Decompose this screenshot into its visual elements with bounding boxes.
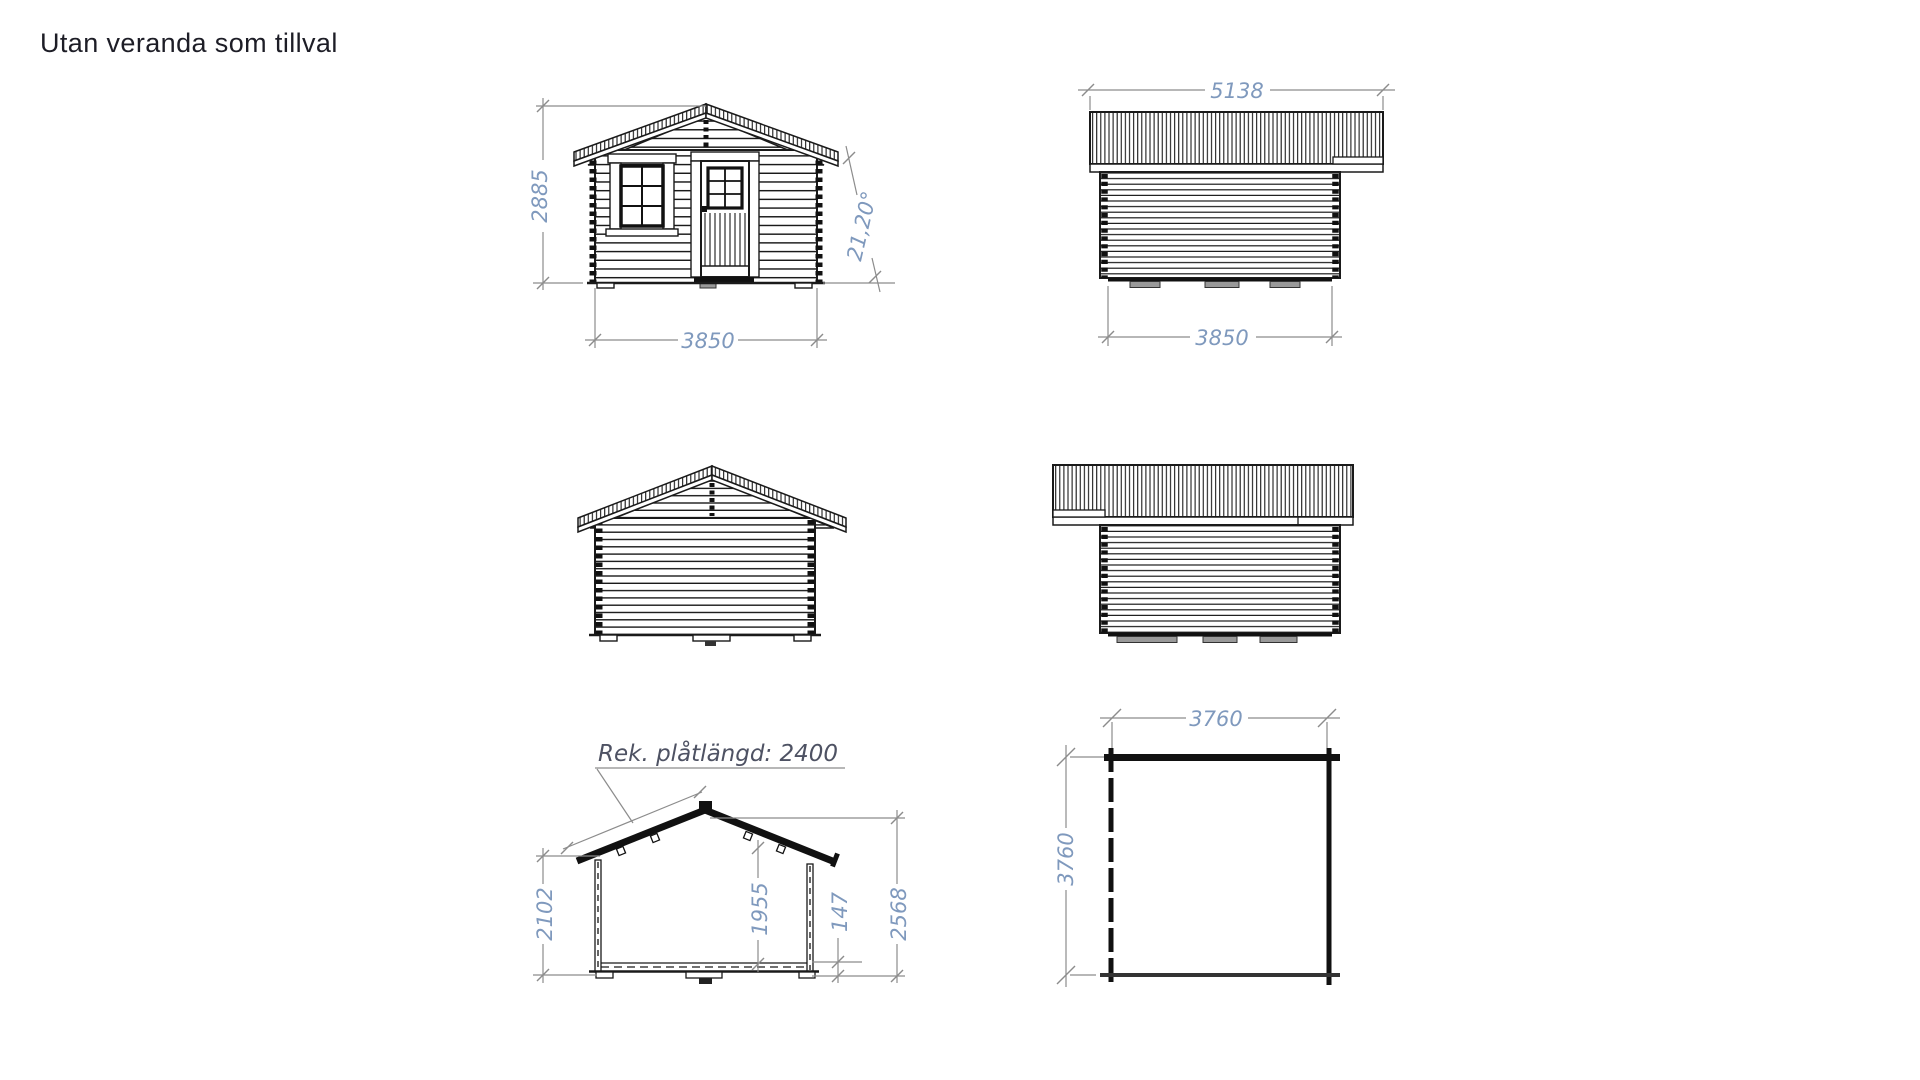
side-a-wall xyxy=(1100,172,1340,278)
side-b-roof xyxy=(1053,465,1353,517)
side-elevation-mid-view xyxy=(1053,465,1353,643)
rear-foundation xyxy=(589,635,821,646)
section-roof xyxy=(577,801,840,867)
side-a-roof xyxy=(1090,112,1383,164)
side-b-fascia-step xyxy=(1053,510,1105,517)
front-elevation-view: 2885 3850 21,20° xyxy=(528,98,895,353)
plan-top-wall xyxy=(1104,754,1340,761)
roof-sheet-label: Rek. plåtlängd: 2400 xyxy=(598,739,838,767)
dim-plan-width-value: 3760 xyxy=(1189,707,1242,731)
drawing-page: Utan veranda som tillval xyxy=(0,0,1920,1080)
front-window xyxy=(606,154,678,236)
dim-plan-width: 3760 xyxy=(1100,707,1340,748)
side-a-fascia xyxy=(1090,164,1383,172)
technical-drawing: 2885 3850 21,20° xyxy=(0,0,1920,1080)
dim-plan-depth-value: 3760 xyxy=(1054,832,1078,885)
dim-section-total-height-value: 2568 xyxy=(887,887,911,940)
dim-section-inner-height: 1955 xyxy=(748,840,772,972)
floor-plan-view: 3760 3760 xyxy=(1054,707,1340,987)
side-b-foundation xyxy=(1108,633,1332,643)
side-elevation-top-view: 5138 3850 xyxy=(1078,79,1395,350)
dim-section-base-height-value: 147 xyxy=(828,891,852,932)
section-floor xyxy=(589,963,819,984)
dim-side-roof-length: 5138 xyxy=(1078,79,1395,110)
plan-bottom-wall xyxy=(1100,973,1340,977)
dim-side-roof-length-value: 5138 xyxy=(1210,79,1263,103)
front-door xyxy=(691,152,759,288)
dim-front-roof-angle-value: 21,20° xyxy=(842,189,881,263)
side-b-fascia xyxy=(1053,517,1353,525)
cross-section-view: Rek. plåtlängd: 2400 xyxy=(533,739,911,984)
dim-side-width-value: 3850 xyxy=(1195,326,1248,350)
section-walls xyxy=(595,860,813,972)
side-b-wall xyxy=(1100,525,1340,633)
rear-elevation-view xyxy=(578,466,846,646)
dim-front-width-value: 3850 xyxy=(681,329,734,353)
dim-plan-depth: 3760 xyxy=(1054,745,1104,987)
rear-wall xyxy=(595,518,815,635)
door-handle xyxy=(702,206,707,212)
dim-section-wall-height: 2102 xyxy=(533,848,600,983)
dim-section-wall-height-value: 2102 xyxy=(533,887,557,940)
dim-front-roof-angle: 21,20° xyxy=(823,146,895,292)
dim-front-width: 3850 xyxy=(585,288,827,353)
roof-sheet-leader xyxy=(597,769,633,823)
side-a-foundation xyxy=(1108,278,1332,288)
dim-front-height-value: 2885 xyxy=(528,169,552,222)
dim-section-inner-height-value: 1955 xyxy=(748,882,772,935)
side-a-fascia-step xyxy=(1333,157,1383,164)
dim-side-width: 3850 xyxy=(1098,286,1342,350)
